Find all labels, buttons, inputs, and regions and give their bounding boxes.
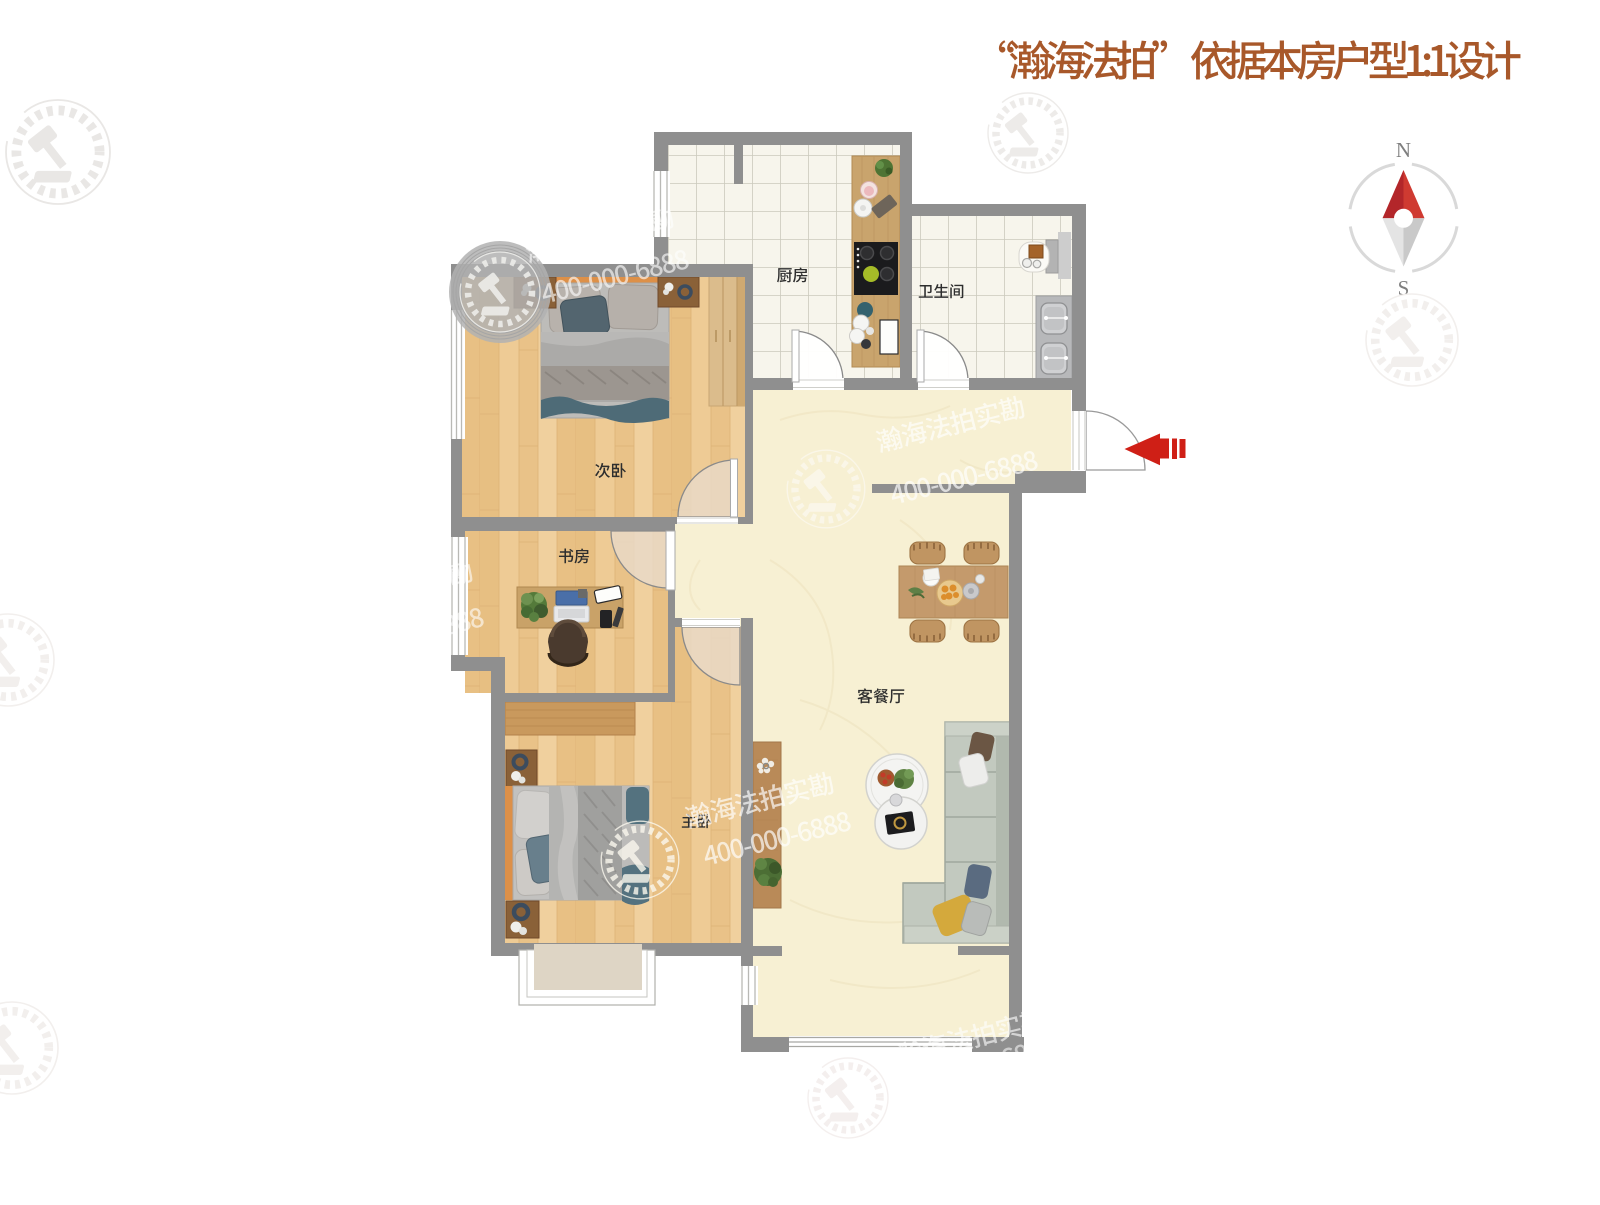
svg-text:N: N (1396, 138, 1411, 162)
